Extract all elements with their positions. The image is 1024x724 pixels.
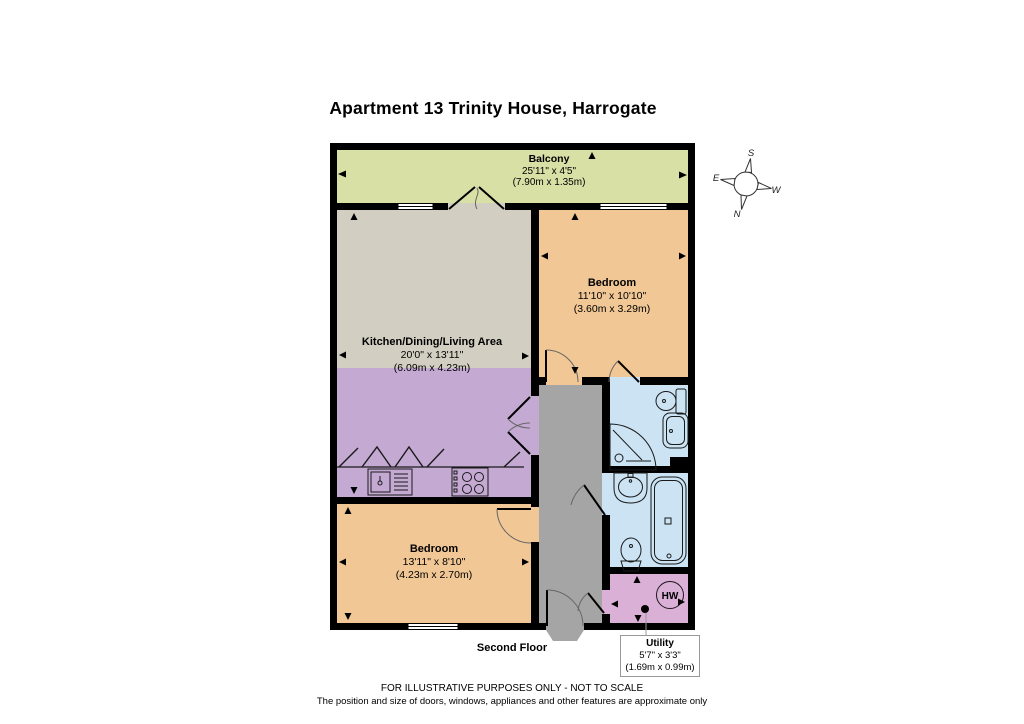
bedroom1-label: Bedroom 11'10" x 10'10" (3.60m x 3.29m) bbox=[532, 277, 692, 315]
room-name: Bedroom bbox=[354, 543, 514, 556]
room-dims-imperial: 13'11" x 8'10" bbox=[354, 556, 514, 569]
hallway-area bbox=[539, 385, 602, 623]
room-dims-imperial: 11'10" x 10'10" bbox=[532, 290, 692, 303]
kitchen-label: Kitchen/Dining/Living Area 20'0" x 13'11… bbox=[322, 336, 542, 374]
hot-water-label: HW bbox=[662, 591, 679, 602]
floorplan-page: Apartment 13 Trinity House, Harrogate bbox=[0, 0, 1024, 724]
room-name: Balcony bbox=[469, 154, 629, 166]
balcony-label: Balcony 25'11" x 4'5" (7.90m x 1.35m) bbox=[469, 154, 629, 188]
window-icon bbox=[408, 624, 458, 630]
disclaimer-line2: The position and size of doors, windows,… bbox=[0, 696, 1024, 707]
room-dims-metric: (1.69m x 0.99m) bbox=[621, 662, 699, 674]
utility-reference-dot bbox=[641, 605, 649, 613]
room-dims-imperial: 25'11" x 4'5" bbox=[469, 166, 629, 177]
entrance-step bbox=[546, 630, 584, 641]
floor-label: Second Floor bbox=[312, 642, 712, 654]
room-dims-metric: (7.90m x 1.35m) bbox=[469, 177, 629, 188]
kitchen-doors-opening bbox=[531, 396, 539, 455]
compass-south-label: S bbox=[748, 148, 755, 159]
room-name: Bedroom bbox=[532, 277, 692, 290]
bedroom1-door-opening bbox=[546, 377, 582, 385]
compass-north-label: N bbox=[734, 209, 741, 220]
room-dims-imperial: 20'0" x 13'11" bbox=[322, 349, 542, 362]
bedroom2-door-opening bbox=[531, 507, 539, 542]
disclaimer-line1: FOR ILLUSTRATIVE PURPOSES ONLY - NOT TO … bbox=[0, 683, 1024, 694]
compass-east-label: E bbox=[713, 173, 720, 184]
room-dims-metric: (6.09m x 4.23m) bbox=[322, 362, 542, 375]
window-icon bbox=[398, 204, 433, 210]
entrance-opening bbox=[546, 623, 584, 630]
room-dims-metric: (3.60m x 3.29m) bbox=[532, 303, 692, 316]
kitchen-area bbox=[337, 368, 531, 497]
compass-west-label: W bbox=[772, 185, 782, 196]
room-name: Kitchen/Dining/Living Area bbox=[322, 336, 542, 349]
window-icon bbox=[600, 204, 667, 210]
bedroom2-label: Bedroom 13'11" x 8'10" (4.23m x 2.70m) bbox=[354, 543, 514, 581]
bathroom-door-opening bbox=[602, 473, 610, 515]
compass-icon: S E W N bbox=[713, 148, 782, 220]
room-dims-metric: (4.23m x 2.70m) bbox=[354, 569, 514, 582]
